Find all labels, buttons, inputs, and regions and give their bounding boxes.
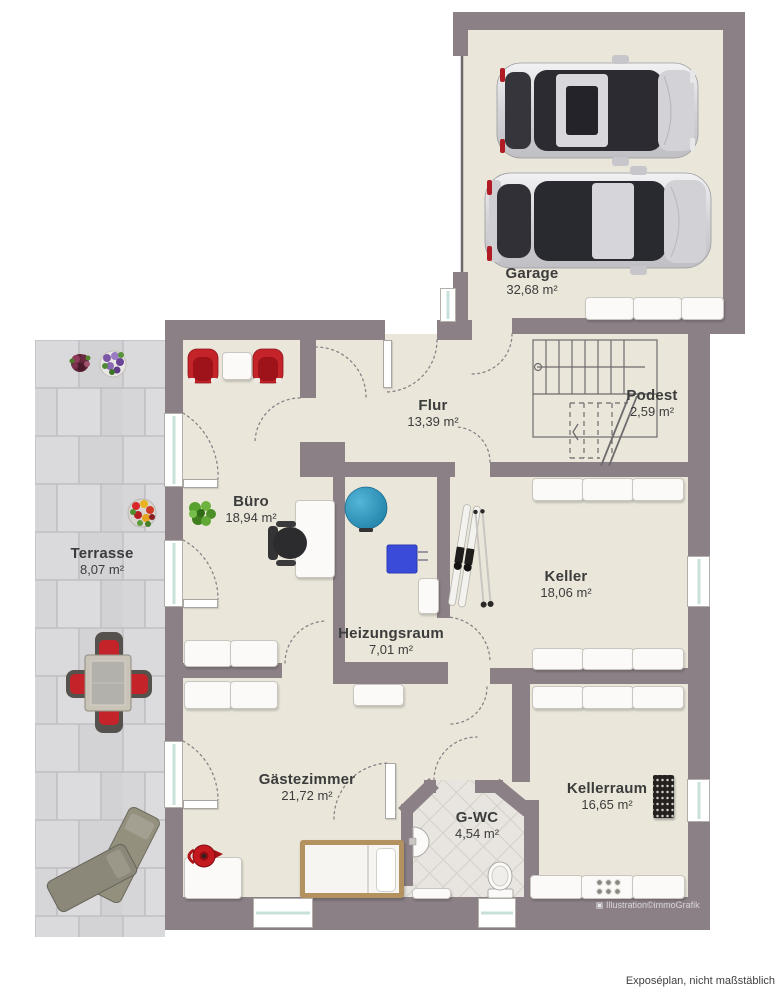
sink-icon [409,827,429,857]
plant-icon [189,501,216,526]
room-area: 7,01 m² [338,643,444,658]
garage-door-arc [472,334,512,374]
room-area: 16,65 m² [567,798,647,813]
red-armchair-icon [188,349,218,383]
room-name: Flur [407,398,458,415]
room-name: Kellerraum [567,781,647,798]
terrace-door-arc-3 [183,741,218,800]
red-armchair-icon [253,349,283,383]
room-name: Terrasse [70,546,133,563]
room-area: 4,54 m² [455,827,499,842]
room-name: Heizungsraum [338,626,444,643]
immografik-logo-icon [596,902,603,909]
floor-plan: Garage 32,68 m² Flur 13,39 m² Podest 2,5… [0,0,780,1000]
watermark-text: Illustration©immoGrafik [606,900,700,910]
room-label-flur: Flur 13,39 m² [407,398,458,429]
sun-lounger-icon [45,842,139,913]
entry-door-arc [385,340,437,392]
room-area: 2,59 m² [626,405,677,420]
terrace-dining-set [66,632,152,733]
toilet-icon [488,862,513,898]
room-label-garage: Garage 32,68 m² [506,266,559,297]
boiler-icon [387,545,428,573]
room-label-keller: Keller 18,06 m² [540,569,591,600]
room-area: 21,72 m² [259,789,355,804]
gwc-door-arc [434,737,477,780]
room-area: 18,06 m² [540,586,591,601]
room-label-heizungsraum: Heizungsraum 7,01 m² [338,626,444,657]
office-chair-icon [268,521,307,566]
room-area: 32,68 m² [506,283,559,298]
room-area: 18,94 m² [225,511,276,526]
room-label-terrasse: Terrasse 8,07 m² [70,546,133,577]
footer-note: Exposéplan, nicht maßstäblich [626,975,775,987]
buero-door-arc-a [255,398,300,443]
buero-door-arc-b [316,347,366,397]
room-area: 8,07 m² [70,563,133,578]
water-tank-icon [345,487,387,532]
room-label-buero: Büro 18,94 m² [225,494,276,525]
keller-door-arc [455,427,490,462]
room-name: Keller [540,569,591,586]
room-name: G-WC [455,810,499,827]
flower-pot-icon [70,354,91,372]
room-label-kellerraum: Kellerraum 16,65 m² [567,781,647,812]
watermark: Illustration©immoGrafik [596,900,700,910]
gaestezimmer-door-arc [285,621,327,663]
skis-icon [448,504,509,612]
suv-car-icon [497,55,698,166]
teapot-icon [189,845,223,867]
room-name: Podest [626,388,677,405]
room-area: 13,39 m² [407,415,458,430]
room-label-gaestezimmer: Gästezimmer 21,72 m² [259,772,355,803]
flower-pot-icon [100,351,126,377]
kellerraum-door-arc [450,687,487,724]
terrace-door-arc-1 [183,413,218,479]
terrace-door-arc-2 [183,540,218,599]
room-name: Gästezimmer [259,772,355,789]
heizung-door-arc [445,617,490,662]
room-name: Büro [225,494,276,511]
sedan-car-icon [485,166,711,275]
room-name: Garage [506,266,559,283]
room-label-gwc: G-WC 4,54 m² [455,810,499,841]
flower-pot-icon [128,499,156,527]
room-label-podest: Podest 2,59 m² [626,388,677,419]
